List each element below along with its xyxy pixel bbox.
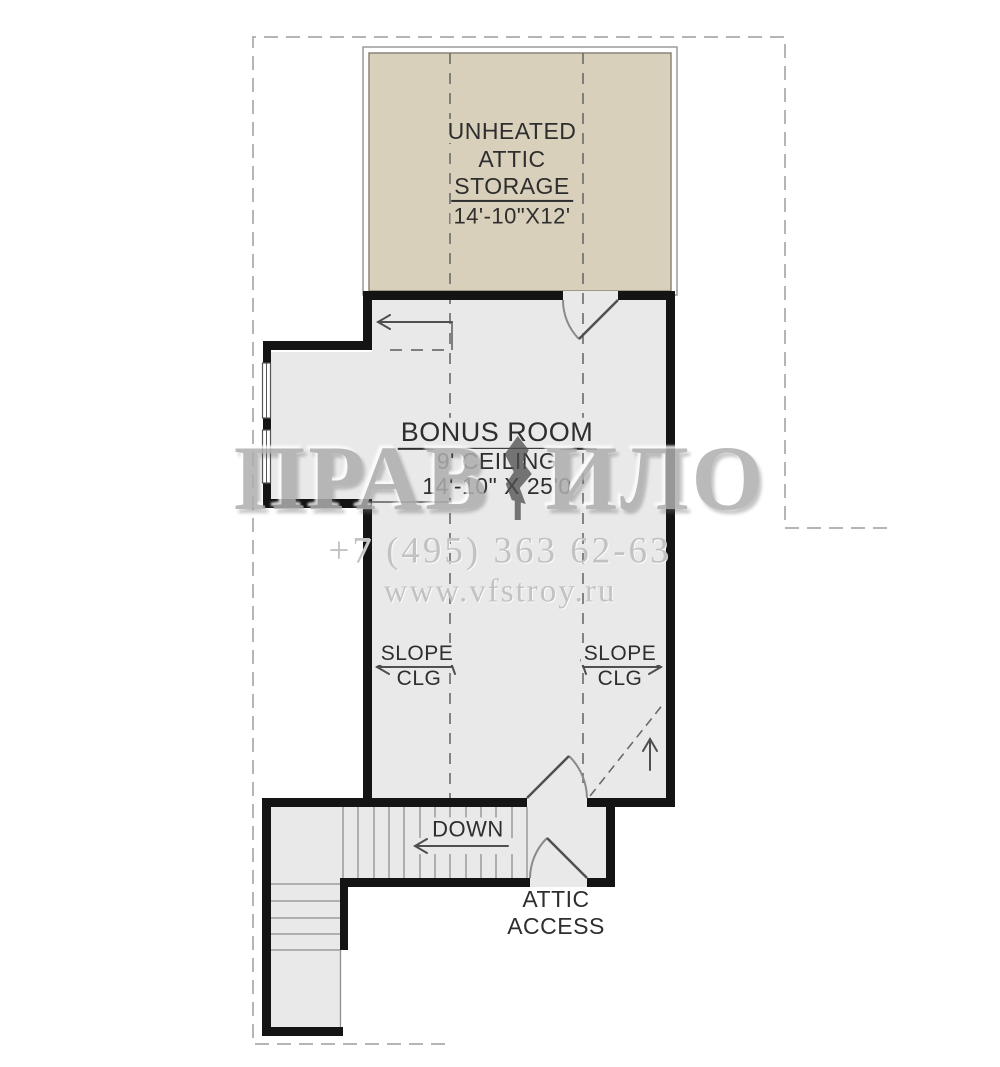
- watermark-brand-right: ИЛО: [546, 425, 767, 531]
- watermark-crest-icon: [498, 434, 538, 522]
- slope-clg-left-line1: SLOPE: [378, 643, 457, 665]
- watermark-brand: ПРАВ ИЛО: [234, 425, 766, 531]
- attic-storage-label-line1: UNHEATED: [445, 119, 580, 143]
- floorplan-page: UNHEATED ATTIC STORAGE 14'-10"X12' BONUS…: [0, 0, 1000, 1067]
- slope-clg-left-line2: CLG: [394, 668, 445, 690]
- watermark-website: www.vfstroy.ru: [384, 574, 617, 611]
- slope-clg-right-line2: CLG: [595, 668, 646, 690]
- watermark-phone: +7 (495) 363 62-63: [328, 530, 671, 573]
- slope-clg-right-line1: SLOPE: [581, 643, 660, 665]
- watermark-brand-left: ПРАВ: [234, 425, 490, 531]
- attic-storage-label-line3: STORAGE: [451, 174, 573, 202]
- attic-storage-label-line2: ATTIC: [475, 147, 548, 171]
- attic-access-label-line2: ACCESS: [507, 914, 605, 938]
- attic-access-label-line1: ATTIC: [522, 887, 589, 911]
- attic-storage-dimensions: 14'-10"X12': [450, 204, 573, 227]
- stairs-down-label: DOWN: [429, 817, 507, 840]
